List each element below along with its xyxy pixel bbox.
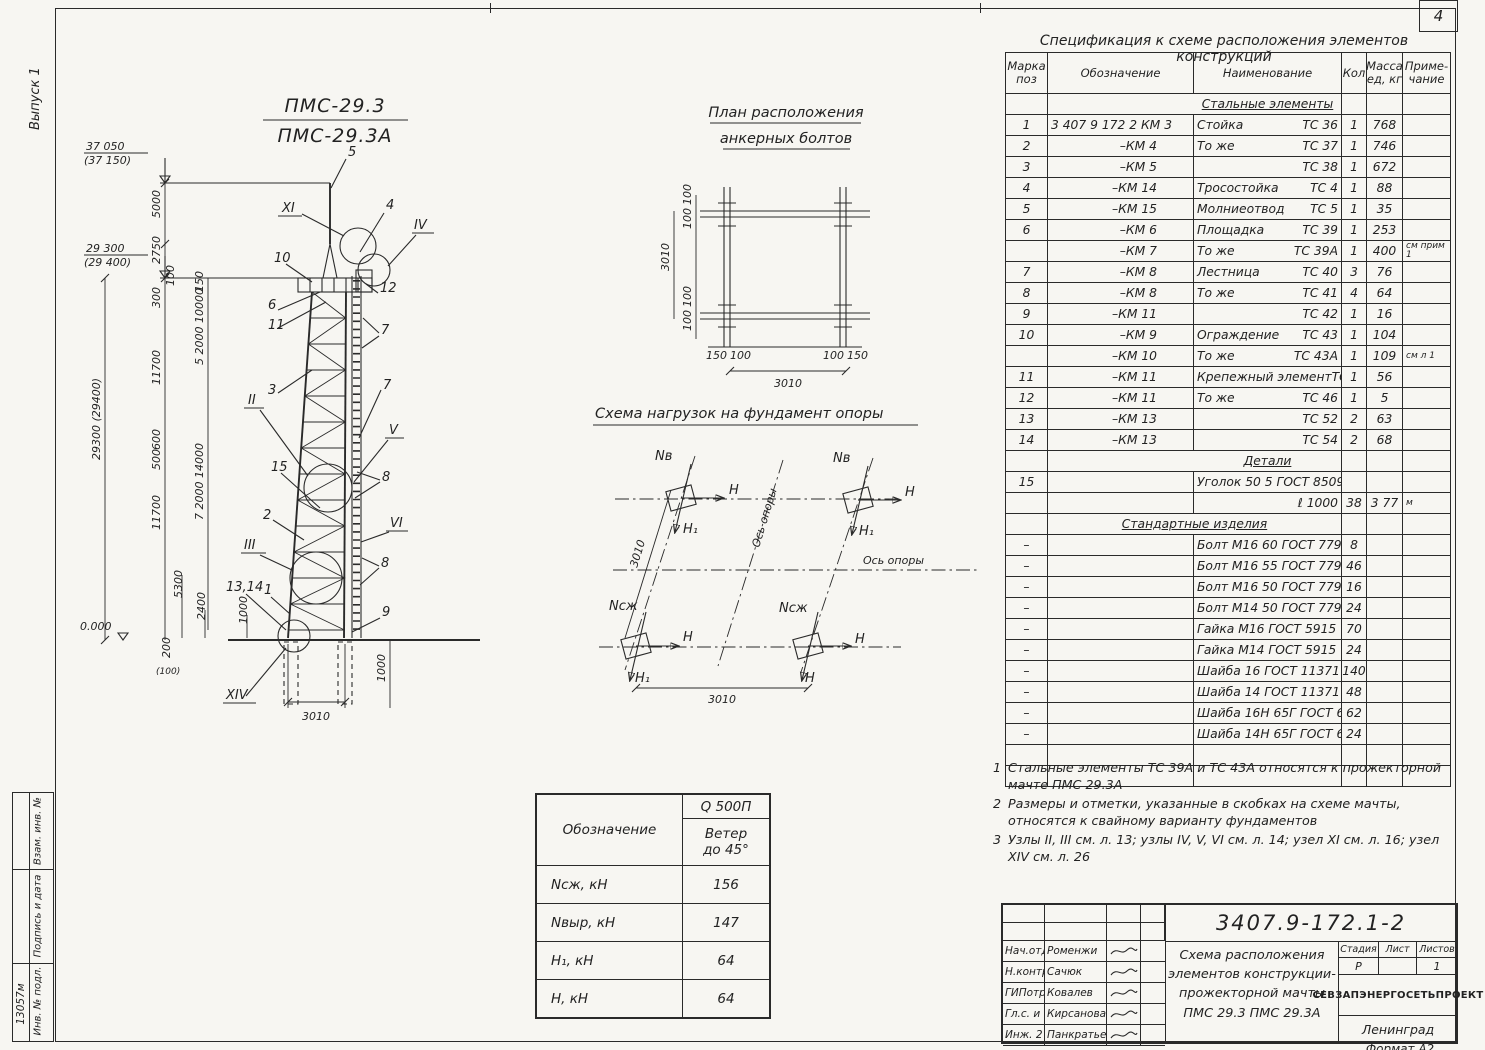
stage-header-row: Стадия Лист Листов [1339, 941, 1457, 958]
spec-row: –Болт М16 50 ГОСТ 7798 70*16 [1006, 576, 1450, 597]
sheet-number: 4 [1419, 0, 1458, 32]
mast-title-bottom: ПМС-29.3А [277, 125, 392, 147]
load-scheme-dims: 3010 3010 [625, 490, 812, 706]
mast-elevation-drawing: ПМС-29.3 ПМС-29.3А [60, 30, 580, 750]
load-table-row: Н, кН64 [537, 979, 769, 1017]
callout-3: 3 [268, 383, 276, 398]
callout-12: 12 [380, 281, 397, 296]
load-dim-3010-bottom: 3010 [708, 693, 736, 706]
elev-37150: (37 150) [84, 154, 131, 167]
spec-row: –Шайба 14 ГОСТ 11371 78*48 [1006, 681, 1450, 702]
sheet-label: Лист [1379, 941, 1417, 957]
anchor-dim-3010-bottom: 3010 [774, 377, 802, 390]
anchor-dim-100: 100 [681, 208, 694, 229]
elev-37050: 37 050 [86, 140, 125, 153]
load-axes: Ось опоры Ось опоры [599, 456, 978, 672]
strip-cell-inv: Инв. № подл. 13057м [13, 963, 53, 1038]
role-row: Инж. 2Панкратьева [1003, 1025, 1165, 1046]
anchor-title-2: анкерных болтов [720, 131, 852, 147]
spec-row: –Шайба 14Н 65Г ГОСТ 6402 70*24 [1006, 723, 1450, 744]
spec-row: 7–КМ 8ЛестницаТС 40376 [1006, 261, 1450, 282]
load-table: Обозначение Q 500П Ветер до 45° Nсж, кН1… [535, 793, 771, 1019]
spec-row: –Шайба 16 ГОСТ 11371 78*140 [1006, 660, 1450, 681]
callout-9: 9 [382, 605, 390, 620]
document-number: 3407.9-172.1-2 [1165, 905, 1456, 942]
dim-chain2: 7 2000 14000 [193, 443, 206, 520]
strip-cell-podpis: Подпись и дата [13, 869, 53, 964]
spec-table-header: Марка позОбозначениеНаименованиеКолМасса… [1006, 53, 1450, 93]
sheets-label: Листов [1417, 941, 1457, 957]
load-table-row: Н₁, кН64 [537, 941, 769, 979]
spec-header-col5: Приме- чание [1403, 53, 1450, 93]
anchor-dim-100: 100 [681, 184, 694, 205]
fold-mark [490, 3, 491, 13]
spec-row: 11–КМ 11Крепежный элементТС 44156 [1006, 366, 1450, 387]
title-block-stage: Стадия Лист Листов Р 1 СЕВЗАПЭНЕРГОСЕТЬП… [1338, 941, 1457, 1042]
load-table-header: Обозначение Q 500П Ветер до 45° [537, 795, 769, 865]
dim-2750: 2750 [150, 236, 163, 264]
spec-row: 3–КМ 5ТС 381672 [1006, 156, 1450, 177]
spec-header-col4: Масса ед, кг [1367, 53, 1403, 93]
stage-value: Р [1339, 958, 1379, 974]
callout-2: 2 [263, 508, 271, 523]
load-table-q: Q 500П [683, 795, 769, 819]
dim-5300: 5300 [172, 570, 185, 598]
load-table-wind2: до 45° [703, 842, 749, 858]
callout-8a: 8 [382, 470, 390, 485]
load-dim-3010-left: 3010 [627, 538, 648, 569]
anchor-bolt-plan: План расположения анкерных болтов 100 10… [618, 95, 963, 395]
sheets-value: 1 [1417, 958, 1457, 974]
strip-cell-vzam: Взам. инв. № [13, 793, 53, 870]
organization-name: СЕВЗАПЭНЕРГОСЕТЬПРОЕКТ [1339, 975, 1457, 1016]
dim-200-alt: (100) [156, 667, 180, 677]
anchor-dim-150: 150 [847, 349, 868, 362]
elev-29400: (29 400) [84, 256, 131, 269]
spec-header-col1: Обозначение [1048, 53, 1194, 93]
dim-600: 600 [150, 429, 163, 450]
fold-mark [980, 3, 981, 13]
callout-6: 6 [268, 298, 276, 313]
spec-row: 13 407 9 172 2 КМ 3СтойкаТС 361768 [1006, 114, 1450, 135]
load-table-row: Nвыр, кН147 [537, 903, 769, 941]
anchor-dim-100: 100 [730, 349, 751, 362]
force-H: Н [729, 483, 739, 498]
drawing-sheet: 4 Выпуск 1 Взам. инв. № Подпись и дата И… [0, 0, 1485, 1050]
ladder [352, 276, 361, 638]
margin-strip: Взам. инв. № Подпись и дата Инв. № подл.… [12, 792, 54, 1042]
spec-header-col3: Кол [1342, 53, 1367, 93]
anchor-title-1: План расположения [708, 105, 864, 121]
force-H: Н [855, 632, 865, 647]
spec-row: 8–КМ 8То жеТС 41464 [1006, 282, 1450, 303]
anchor-plan-dims: 100 100 3010 100 100 150 100 100 150 301… [659, 184, 868, 390]
stage-value-row: Р 1 [1339, 958, 1457, 975]
force-Nv: Nв [833, 451, 850, 466]
force-labels: Nв Н Н₁ Nв Н Н₁ Nсж Н Н₁ Nсж Н Н [609, 449, 915, 686]
dim-100: 100 [164, 265, 177, 286]
doc-title-line1: Схема расположения [1166, 946, 1338, 965]
spec-row: –Болт М16 60 ГОСТ 7798 70*8 [1006, 534, 1450, 555]
elev-0000: 0.000 [80, 620, 112, 633]
anchor-dim-100: 100 [823, 349, 844, 362]
spec-row: –Шайба 16Н 65Г ГОСТ 6402 7062 [1006, 702, 1450, 723]
stage-label: Стадия [1339, 941, 1379, 957]
anchor-dim-150: 150 [706, 349, 727, 362]
elev-29300: 29 300 [86, 242, 125, 255]
dim-1000-right: 1000 [375, 654, 388, 682]
foundation-pads [621, 485, 873, 659]
force-H: Н [683, 630, 693, 645]
doc-title-line4: ПМС 29.3 ПМС 29.3А [1166, 1004, 1338, 1023]
node-II: II [248, 393, 256, 408]
dim-total: 29300 (29400) [90, 378, 103, 460]
node-XIV: XIV [225, 688, 249, 703]
role-row: ГИПотрКовалев [1003, 983, 1165, 1004]
spec-row: 10–КМ 9ОграждениеТС 431104 [1006, 324, 1450, 345]
callout-5: 5 [348, 145, 356, 160]
callout-7b: 7 [383, 378, 392, 393]
dim-1000: 1000 [237, 596, 250, 624]
strip-label-podpis: Подпись и дата [32, 875, 43, 958]
force-H1: Н₁ [859, 524, 874, 539]
spec-row: –Гайка М14 ГОСТ 5915 70*24 [1006, 639, 1450, 660]
foundation-piles [284, 642, 352, 704]
mast-title-top: ПМС-29.3 [284, 95, 385, 117]
support-axis-label: Ось опоры [863, 554, 924, 567]
node-V: V [389, 423, 399, 438]
node-IV: IV [414, 218, 428, 233]
callout-15: 15 [271, 460, 288, 475]
spec-row: 5–КМ 15МолниеотводТС 5135 [1006, 198, 1450, 219]
spec-row: Стальные элементы [1006, 93, 1450, 114]
role-row: Нач.отдРоменжи [1003, 941, 1165, 962]
force-Nv: Nв [655, 449, 672, 464]
load-table-body: Nсж, кН156Nвыр, кН147Н₁, кН64Н, кН64 [537, 865, 769, 1017]
foundation-load-scheme: Схема нагрузок на фундамент опоры Ось оп… [583, 398, 993, 748]
lightning-rod [323, 183, 337, 278]
spec-row: –КМ 10То жеТС 43А1109см л 1 [1006, 345, 1450, 366]
strip-inventory-number: 13057м [15, 984, 27, 1025]
spec-row: 2–КМ 4То жеТС 371746 [1006, 135, 1450, 156]
note: 1Стальные элементы ТС 39А и ТС 43А относ… [993, 760, 1451, 793]
callouts: 5 4 XI IV 10 12 6 11 3 7 7 II V [223, 145, 434, 703]
dim-300: 300 [150, 287, 163, 308]
title-block-roles: Нач.отдРоменжиН.контрСачюкГИПотрКовалевГ… [1003, 941, 1165, 1042]
callout-4: 4 [386, 198, 394, 213]
callout-8b: 8 [381, 556, 389, 571]
spec-row: –Гайка М16 ГОСТ 5915 70*70 [1006, 618, 1450, 639]
dim-200: 200 [160, 637, 173, 658]
title-block: 3407.9-172.1-2 Нач.отдРоменжиН.контрСачю… [1001, 903, 1458, 1044]
format-note: Формат А2 [1340, 1042, 1460, 1050]
spec-row: 13–КМ 13ТС 52263 [1006, 408, 1450, 429]
load-scheme-title: Схема нагрузок на фундамент опоры [595, 406, 883, 422]
load-table-col0: Обозначение [537, 795, 683, 865]
sheet-value [1379, 958, 1417, 974]
load-table-wind1: Ветер [705, 826, 747, 842]
spec-row: –КМ 7То жеТС 39А1400см прим 1 [1006, 240, 1450, 261]
anchor-dim-3010-left: 3010 [659, 243, 672, 271]
spec-row: –Болт М16 55 ГОСТ 7798 70*46 [1006, 555, 1450, 576]
spec-row: 9–КМ 11ТС 42116 [1006, 303, 1450, 324]
lattice-tower [288, 292, 346, 638]
spec-row: –Болт М14 50 ГОСТ 7798 70*24 [1006, 597, 1450, 618]
role-row: Гл.с. иКирсанова [1003, 1004, 1165, 1025]
callout-10: 10 [274, 251, 291, 266]
strip-label-vzam: Взам. инв. № [32, 797, 43, 865]
spec-section-title: Стандартные изделия [1051, 517, 1338, 531]
spec-section-title: Стальные элементы [1197, 97, 1338, 111]
force-H1: Н₁ [635, 671, 650, 686]
spec-row: Стандартные изделия [1006, 513, 1450, 534]
spec-header-col2: Наименование [1194, 53, 1342, 93]
node-XI: XI [281, 201, 295, 216]
notes-block: 1Стальные элементы ТС 39А и ТС 43А относ… [993, 760, 1451, 868]
dim-11700b: 11700 [150, 495, 163, 530]
spec-row: 14–КМ 13ТС 54268 [1006, 429, 1450, 450]
dim-500: 500 [150, 449, 163, 470]
spec-row: ℓ 1000383 77м [1006, 492, 1450, 513]
force-H1: Н₁ [683, 522, 698, 537]
spec-table: Марка позОбозначениеНаименованиеКолМасса… [1005, 52, 1451, 787]
dim-2400: 2400 [195, 592, 208, 620]
force-H: Н [805, 671, 815, 686]
dim-5000: 5000 [150, 190, 163, 218]
dim-11700a: 11700 [150, 350, 163, 385]
doc-title-line2: элементов конструкции- [1166, 965, 1338, 984]
dim-chain1: 5 2000 10000 [193, 288, 206, 365]
callout-1: 1 [264, 583, 272, 598]
force-H: Н [905, 485, 915, 500]
node-VI: VI [390, 516, 403, 531]
support-axis-label-diag: Ось опоры [749, 486, 779, 548]
callout-13-14: 13,14 [226, 580, 263, 595]
spec-section-title: Детали [1197, 454, 1338, 468]
force-Nszh: Nсж [779, 601, 808, 616]
spec-row: 6–КМ 6ПлощадкаТС 391253 [1006, 219, 1450, 240]
issue-label: Выпуск 1 [28, 67, 43, 130]
spec-row: 15Уголок 50 5 ГОСТ 8509 86 [1006, 471, 1450, 492]
spec-table-body: Стальные элементы13 407 9 172 2 КМ 3Стой… [1006, 93, 1450, 786]
spec-row: Детали [1006, 450, 1450, 471]
spec-row: 12–КМ 11То жеТС 4615 [1006, 387, 1450, 408]
strip-label-inv: Инв. № подл. [32, 966, 43, 1035]
load-table-row: Nсж, кН156 [537, 865, 769, 903]
dim-3010: 3010 [302, 710, 330, 723]
anchor-dim-100: 100 [681, 286, 694, 307]
note: 3Узлы II, III см. л. 13; узлы IV, V, VI … [993, 832, 1451, 865]
anchor-dim-100: 100 [681, 310, 694, 331]
spec-row: 4–КМ 14ТросостойкаТС 4188 [1006, 177, 1450, 198]
callout-7a: 7 [381, 323, 390, 338]
role-row: Н.контрСачюк [1003, 962, 1165, 983]
note: 2Размеры и отметки, указанные в скобках … [993, 796, 1451, 829]
title-block-revision-grid [1003, 905, 1165, 941]
organization-city: Ленинград [1339, 1016, 1457, 1042]
anchor-plan-lines [700, 187, 870, 347]
spec-header-col0: Марка поз [1006, 53, 1048, 93]
node-III: III [244, 538, 256, 553]
